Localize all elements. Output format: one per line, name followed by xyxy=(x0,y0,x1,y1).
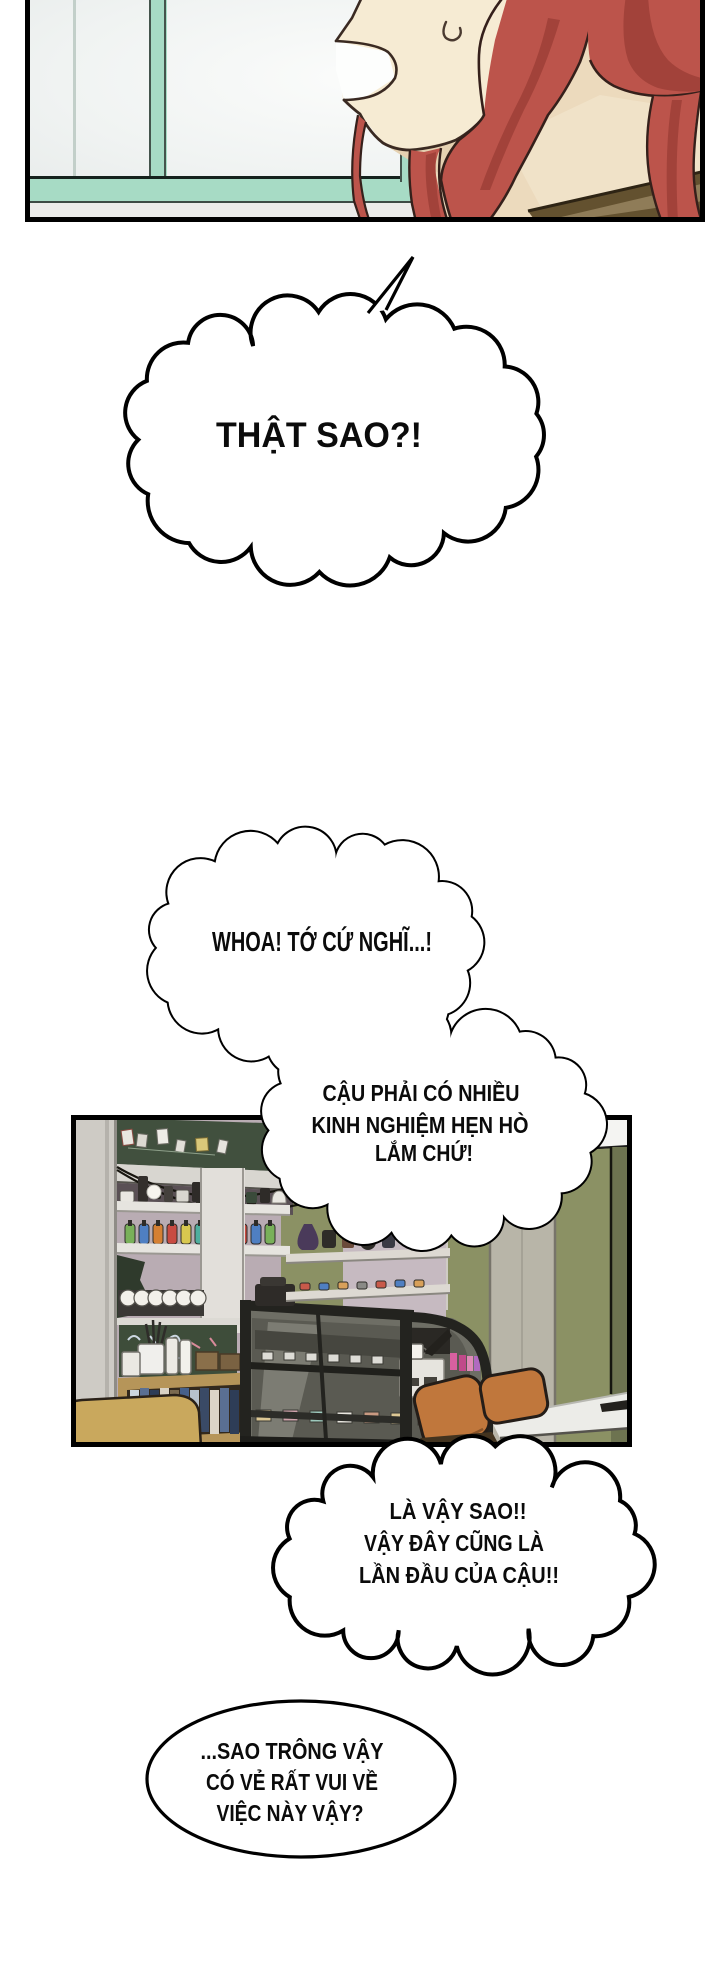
svg-text:WHOA! TỚ CỨ NGHĨ...!: WHOA! TỚ CỨ NGHĨ...! xyxy=(212,926,432,957)
svg-text:LÀ VẬY SAO!!: LÀ VẬY SAO!! xyxy=(390,1497,527,1524)
svg-text:LẦN ĐẦU CỦA CẬU!!: LẦN ĐẦU CỦA CẬU!! xyxy=(359,1560,559,1588)
svg-text:CẬU PHẢI CÓ NHIỀU: CẬU PHẢI CÓ NHIỀU xyxy=(323,1078,520,1106)
svg-text:CÓ VẺ RẤT VUI VỀ: CÓ VẺ RẤT VUI VỀ xyxy=(206,1767,378,1795)
svg-text:...SAO TRÔNG VẬY: ...SAO TRÔNG VẬY xyxy=(201,1737,384,1764)
svg-text:KINH NGHIỆM HẸN HÒ: KINH NGHIỆM HẸN HÒ xyxy=(312,1111,529,1138)
svg-text:VIỆC NÀY VẬY?: VIỆC NÀY VẬY? xyxy=(217,1799,364,1826)
svg-text:LẮM CHỨ!: LẮM CHỨ! xyxy=(375,1139,473,1166)
svg-text:THẬT SAO?!: THẬT SAO?! xyxy=(216,415,422,455)
svg-text:VẬY ĐÂY CŨNG LÀ: VẬY ĐÂY CŨNG LÀ xyxy=(364,1529,544,1556)
